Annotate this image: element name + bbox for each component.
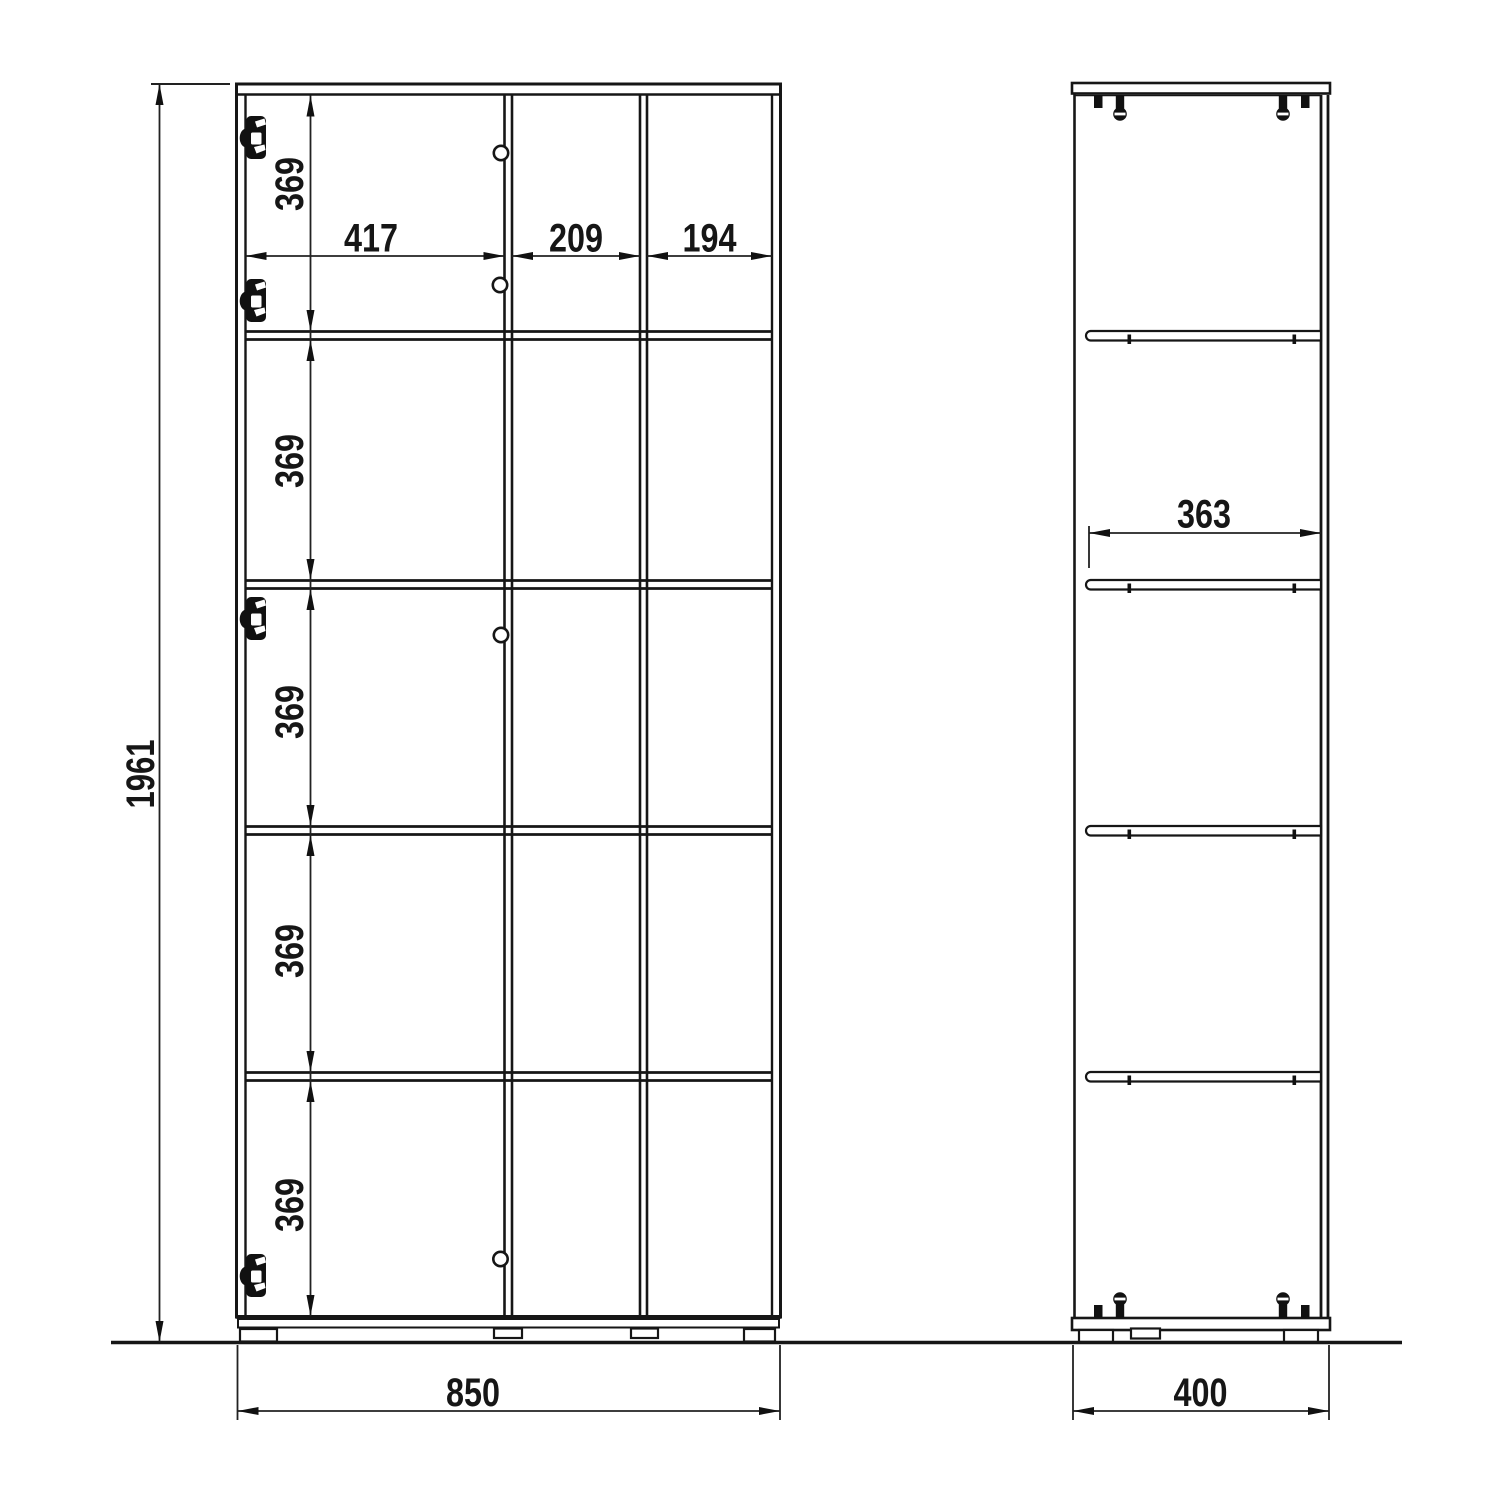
svg-text:369: 369 — [268, 434, 312, 488]
svg-text:369: 369 — [268, 157, 312, 211]
svg-text:363: 363 — [1177, 493, 1231, 537]
svg-text:369: 369 — [268, 685, 312, 739]
svg-text:194: 194 — [683, 217, 738, 261]
svg-text:400: 400 — [1174, 1371, 1228, 1415]
svg-text:369: 369 — [268, 924, 312, 978]
svg-text:417: 417 — [344, 217, 398, 261]
svg-text:1961: 1961 — [119, 740, 163, 809]
svg-text:209: 209 — [549, 217, 603, 261]
svg-text:850: 850 — [446, 1371, 500, 1415]
svg-text:369: 369 — [268, 1178, 312, 1232]
